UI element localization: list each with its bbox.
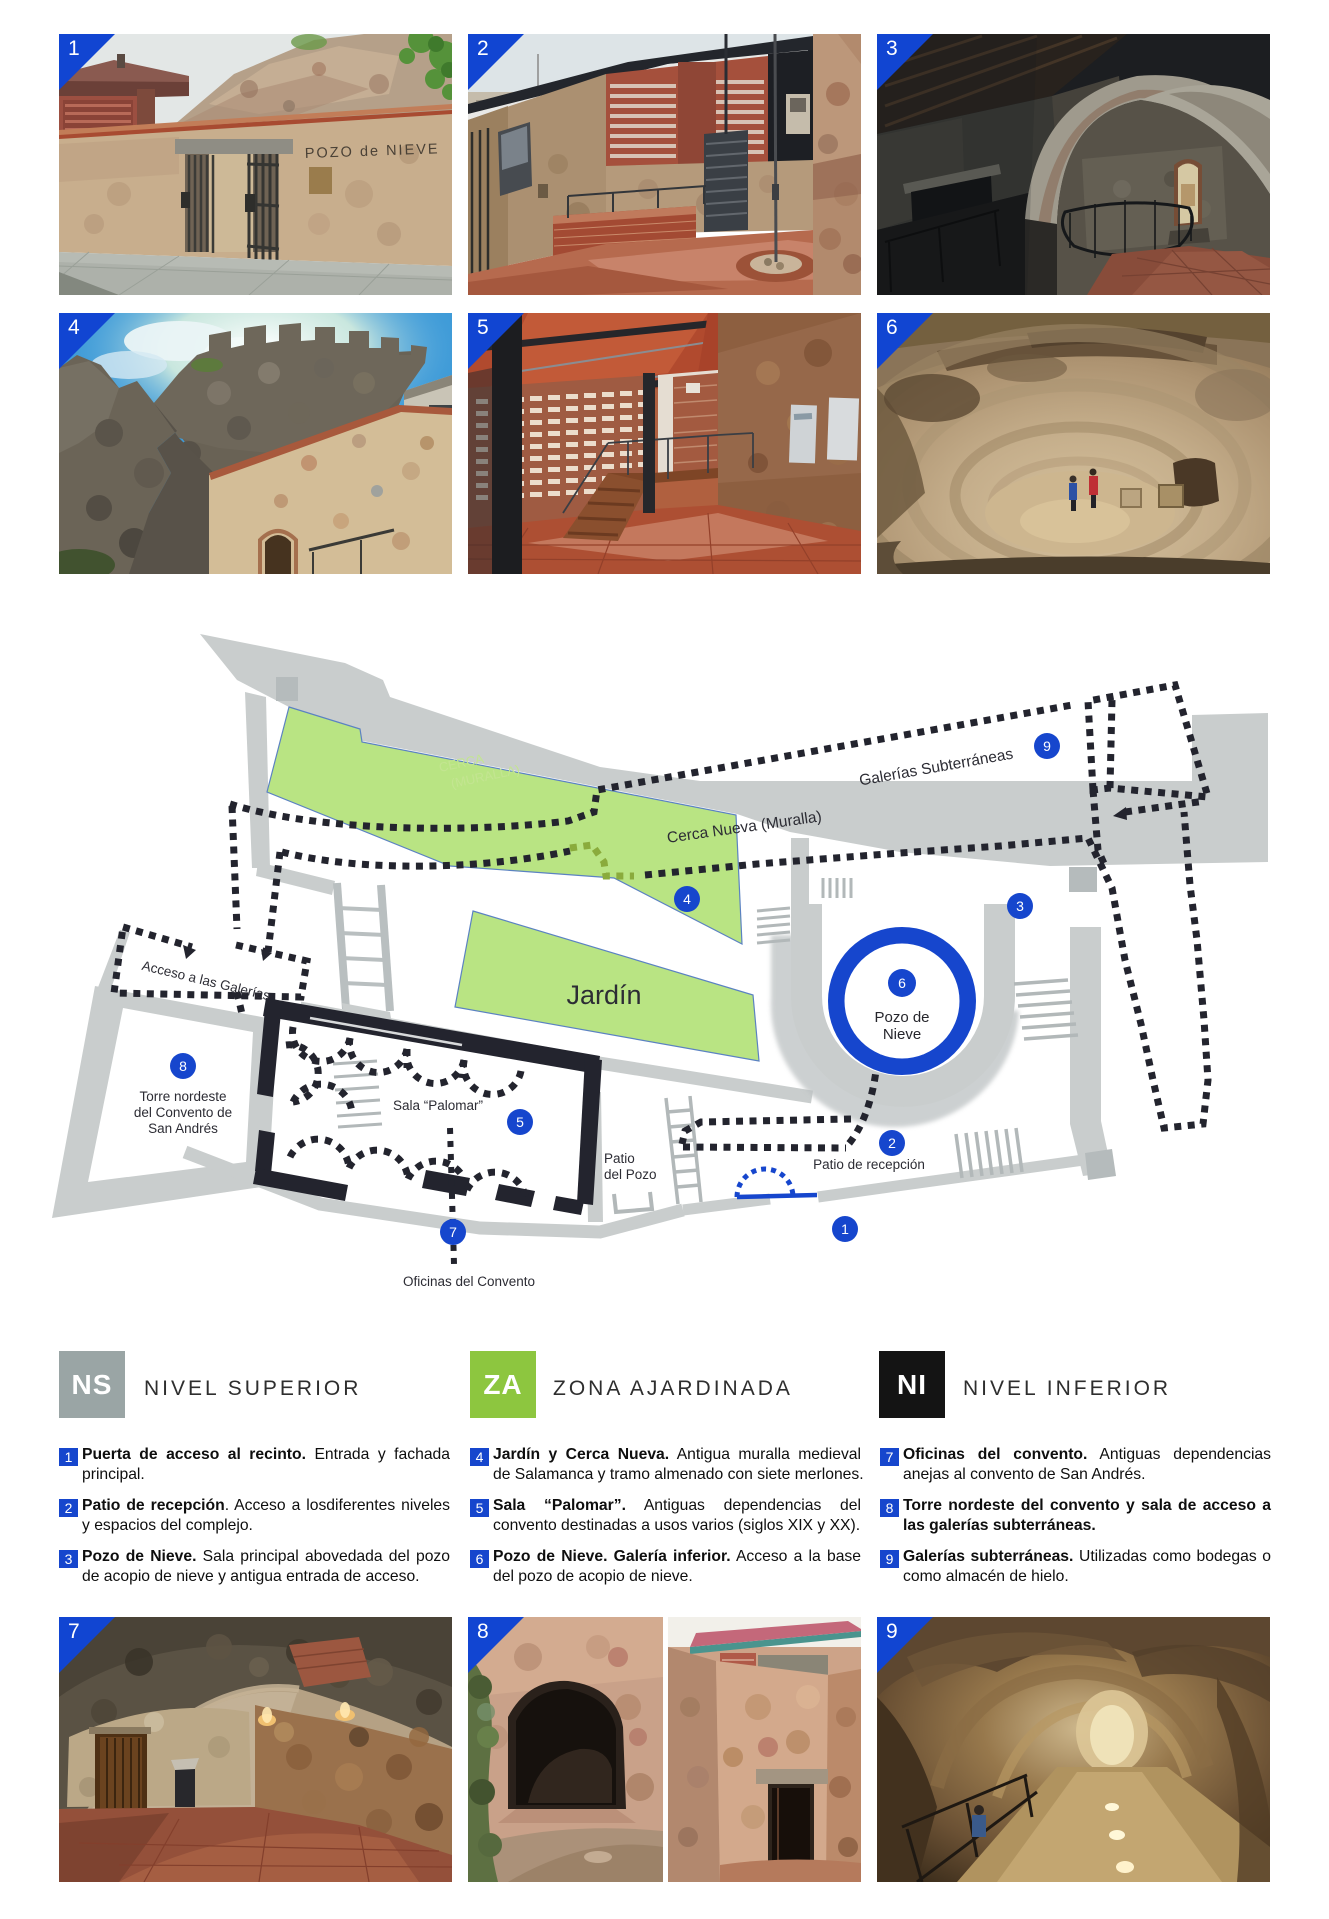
svg-text:Torre nordeste: Torre nordeste bbox=[139, 1089, 226, 1104]
svg-text:del Pozo: del Pozo bbox=[604, 1167, 657, 1182]
svg-text:Sala “Palomar”: Sala “Palomar” bbox=[393, 1098, 483, 1113]
svg-text:Oficinas del Convento: Oficinas del Convento bbox=[403, 1274, 535, 1289]
svg-text:9: 9 bbox=[1043, 738, 1051, 754]
svg-text:5: 5 bbox=[516, 1114, 524, 1130]
svg-text:4: 4 bbox=[683, 891, 691, 907]
svg-text:7: 7 bbox=[449, 1224, 457, 1240]
svg-text:8: 8 bbox=[179, 1058, 187, 1074]
svg-text:1: 1 bbox=[841, 1221, 849, 1237]
svg-text:Nieve: Nieve bbox=[883, 1026, 921, 1043]
svg-text:Patio de recepción: Patio de recepción bbox=[813, 1157, 925, 1172]
svg-text:Pozo de: Pozo de bbox=[874, 1009, 929, 1026]
svg-text:Jardín: Jardín bbox=[566, 980, 641, 1010]
svg-text:2: 2 bbox=[888, 1135, 896, 1151]
svg-text:3: 3 bbox=[1016, 898, 1024, 914]
svg-text:San Andrés: San Andrés bbox=[148, 1121, 218, 1136]
svg-text:6: 6 bbox=[898, 975, 906, 991]
svg-text:del Convento de: del Convento de bbox=[134, 1105, 232, 1120]
svg-text:Patio: Patio bbox=[604, 1151, 635, 1166]
